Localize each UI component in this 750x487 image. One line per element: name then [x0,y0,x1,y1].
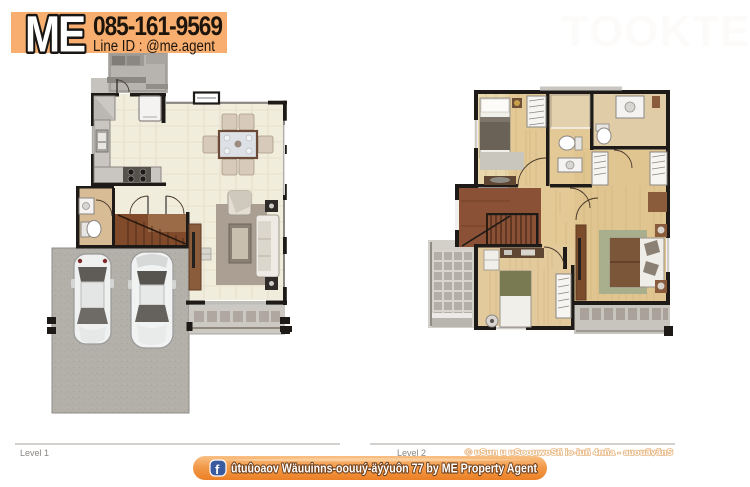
svg-text:© uSun u uSoouwoSñ io-iuñ 4nña: © uSun u uSoouwoSñ io-iuñ 4nña - auouãvã… [465,447,673,457]
svg-text:ûtuûoaov Wäuuinns-oouuý-äýýuôn: ûtuûoaov Wäuuinns-oouuý-äýýuôn 77 by ME … [231,462,538,476]
svg-text:ME: ME [25,6,85,63]
svg-text:085-161-9569: 085-161-9569 [93,11,223,41]
svg-text:Level 1: Level 1 [20,448,49,458]
svg-text:TOOKTEE: TOOKTEE [562,7,750,56]
svg-text:Line ID : @me.agent: Line ID : @me.agent [93,38,216,55]
svg-text:f: f [215,462,220,477]
